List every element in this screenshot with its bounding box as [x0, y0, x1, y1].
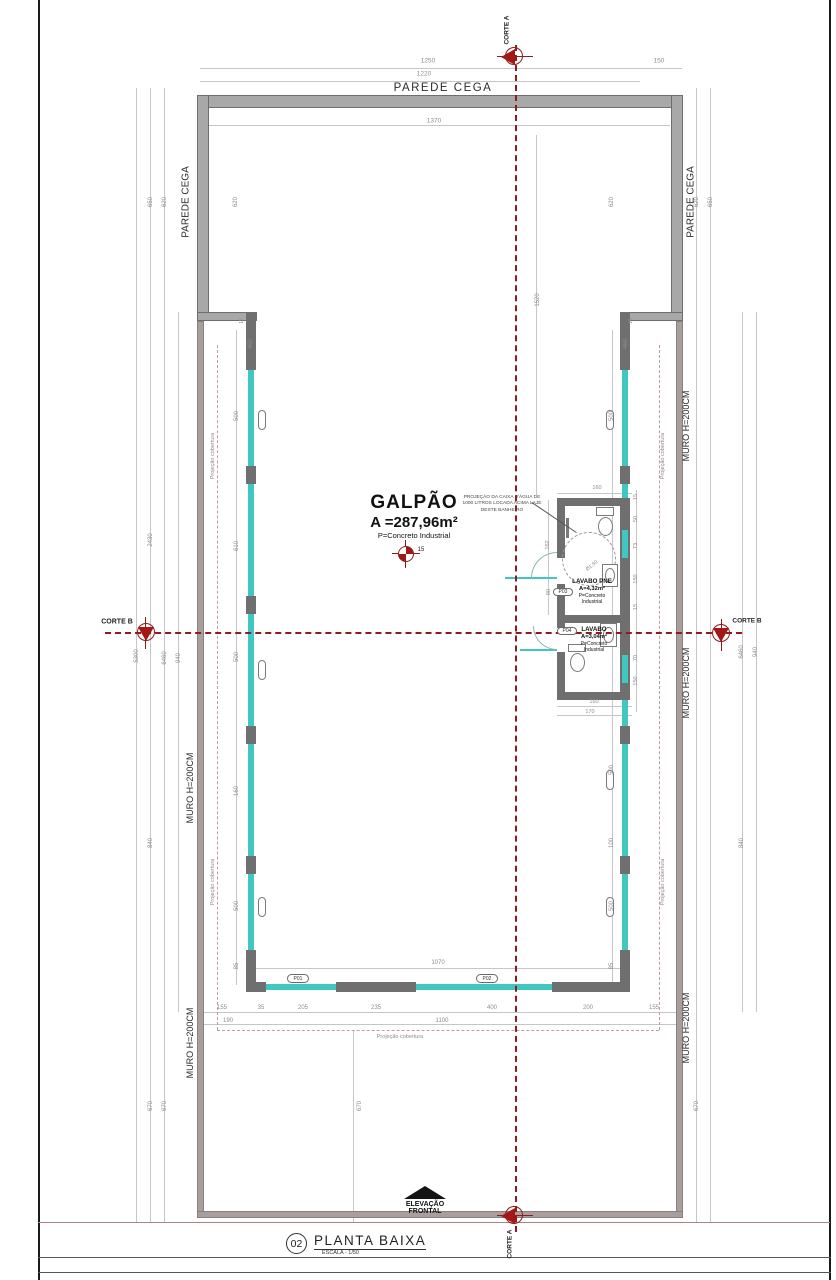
- dim-70-b: 70: [633, 655, 639, 661]
- dim-650-r: 650: [708, 197, 714, 207]
- dim-670-c: 670: [357, 1101, 363, 1111]
- section-marker-arrow-corte-b-right: [713, 628, 729, 642]
- dim-620-l1: 620: [162, 197, 168, 207]
- coverage-projection-line-left: [217, 345, 218, 1030]
- dim-line: [536, 135, 537, 495]
- lbl-muro-right-2: MURO H=200CM: [681, 648, 691, 719]
- glass-strip: [622, 874, 628, 950]
- dim-500-l2: 500: [234, 652, 240, 662]
- dim-500-l3: 500: [234, 901, 240, 911]
- dim-500-r3: 500: [609, 901, 615, 911]
- dim-15-b2: 15: [633, 604, 639, 610]
- dim-line: [557, 706, 632, 707]
- dim-150-b1: 150: [633, 574, 639, 583]
- dim-line: [209, 125, 670, 126]
- dim-line: [557, 715, 632, 716]
- lbl-parede-cega-left: PAREDE CEGA: [181, 166, 192, 238]
- dim-1100: 1100: [436, 1018, 449, 1024]
- lavabo-floor: P=Concreto Industrial: [574, 641, 614, 654]
- toilet-bowl: [598, 517, 613, 536]
- dim-85-l: 85: [234, 963, 240, 970]
- dim-line: [200, 68, 682, 69]
- drawing-number-badge: 02: [286, 1233, 307, 1254]
- door-tag-p01: P01: [287, 974, 309, 983]
- room-level-value: 15: [418, 547, 425, 553]
- dim-620-r2: 620: [694, 197, 700, 207]
- section-marker-arrow-corte-b-left: [138, 627, 154, 641]
- dim-200: 200: [583, 1005, 593, 1011]
- dim-650-l: 650: [148, 197, 154, 207]
- room-floor: P=Concreto Industrial: [352, 531, 476, 540]
- lbl-muro-left-1: MURO H=200CM: [185, 753, 195, 824]
- drawing-title: PLANTA BAIXA: [314, 1233, 426, 1250]
- lavabo-pne-name: LAVABO PNE: [564, 578, 620, 586]
- glass-strip: [248, 370, 254, 466]
- wall-left-segment: [246, 856, 256, 874]
- dim-400: 400: [487, 1005, 497, 1011]
- dim-1250: 1250: [421, 58, 435, 65]
- glass-strip: [248, 614, 254, 726]
- wall-left-segment: [246, 466, 256, 484]
- dim-35: 35: [258, 1005, 265, 1011]
- corte-a-label-bottom: CORTE A: [507, 1229, 514, 1258]
- glass-strip: [622, 370, 628, 466]
- dim-1520: 1520: [535, 293, 541, 306]
- corte-b-label-right: CORTE B: [732, 618, 761, 625]
- elevation-label-line1: ELEVAÇÃO: [386, 1201, 464, 1208]
- wall-left-segment: [246, 726, 256, 744]
- wall-bathroom-mid: [557, 615, 630, 623]
- dim-170-bb: 170: [585, 709, 594, 715]
- room-name: GALPÃO: [352, 492, 476, 514]
- dim-6460-l: 6460: [162, 651, 168, 664]
- lbl-proj-right-1: Projeção cobertura: [660, 433, 666, 479]
- elevation-marker: ELEVAÇÃO FRONTAL: [386, 1186, 464, 1215]
- wall-parede-cega-top: [197, 95, 683, 108]
- dim-620-l2: 620: [233, 197, 239, 207]
- bathroom-window: [622, 530, 628, 558]
- dim-1070: 1070: [431, 960, 444, 966]
- dim-460-l: 460: [248, 339, 254, 349]
- corte-a-label-top: CORTE A: [504, 15, 511, 44]
- toilet-bowl: [570, 653, 585, 672]
- lbl-parede-cega-top: PAREDE CEGA: [394, 82, 493, 94]
- dim-1370: 1370: [427, 118, 441, 125]
- wall-left-segment: [246, 596, 256, 614]
- section-marker-arrow-corte-a-top: [501, 49, 515, 65]
- dim-610-l: 610: [234, 541, 240, 551]
- drawing-scale: ESCALA - 1/50: [322, 1250, 359, 1256]
- sheet-border-left: [38, 0, 40, 1280]
- wall-bathroom-left: [557, 652, 565, 692]
- dim-line: [197, 1024, 682, 1025]
- door-opening-p01: [266, 984, 336, 990]
- door-opening-p02: [416, 984, 552, 990]
- dim-6460-r: 6460: [739, 645, 745, 658]
- glass-strip: [248, 484, 254, 596]
- dim-940-l: 940: [176, 653, 182, 663]
- dim-15-jl: 15: [239, 318, 245, 324]
- glass-strip: [248, 744, 254, 856]
- door-tag-p03: P03: [553, 588, 573, 596]
- window-tag: [258, 897, 266, 917]
- dim-235: 235: [371, 1005, 381, 1011]
- dim-line: [710, 88, 711, 1222]
- dim-50-b: 50: [633, 516, 639, 522]
- dim-100-r: 100: [609, 838, 615, 848]
- elevation-triangle-icon: [404, 1186, 446, 1199]
- dim-150-b2: 150: [633, 676, 639, 685]
- bathroom-window: [622, 655, 628, 683]
- dim-500-r2: 500: [609, 765, 615, 775]
- door-tag-p02: P02: [476, 974, 498, 983]
- dim-2430: 2430: [148, 533, 154, 546]
- dim-160-bb: 160: [589, 699, 598, 705]
- wall-bottom-segment: [246, 982, 266, 992]
- sheet-line-bottom-2: [38, 1272, 831, 1273]
- dim-15-b1: 15: [633, 494, 639, 500]
- dim-line: [197, 1012, 682, 1013]
- floor-plan-sheet: GALPÃO A =287,96m² P=Concreto Industrial…: [0, 0, 836, 1280]
- coverage-projection-line-bottom: [217, 1030, 659, 1031]
- glass-strip: [248, 874, 254, 950]
- room-area: A =287,96m²: [352, 514, 476, 531]
- wall-bathroom-top: [557, 498, 630, 506]
- dim-670-r: 670: [694, 1101, 700, 1111]
- sheet-line-bottom-1: [38, 1257, 831, 1258]
- wall-parede-cega-right: [671, 95, 683, 321]
- wall-muro-left: [197, 321, 204, 1218]
- dim-line: [742, 312, 743, 1012]
- wall-bottom-segment: [552, 982, 630, 992]
- dim-160-bt: 160: [592, 485, 601, 491]
- lbl-proj-left-1: Projeção cobertura: [210, 433, 216, 479]
- dim-670-l2: 670: [162, 1101, 168, 1111]
- section-marker-arrow-corte-a-bottom: [501, 1208, 515, 1224]
- wall-jog-right: [626, 312, 683, 321]
- dim-155-a: 155: [217, 1005, 227, 1011]
- door-swing-arc: [533, 626, 557, 650]
- dim-670-l1: 670: [148, 1101, 154, 1111]
- wall-right-segment: [620, 856, 630, 874]
- dim-500-r1: 500: [609, 411, 615, 421]
- corte-b-label-left: CORTE B: [101, 619, 133, 626]
- dim-1220: 1220: [417, 71, 431, 78]
- lot-line: [38, 1222, 830, 1223]
- dim-90-b: 90: [546, 589, 552, 595]
- glass-strip: [622, 700, 628, 726]
- lbl-muro-right-3: MURO H=200CM: [681, 993, 691, 1064]
- wall-right-segment: [620, 726, 630, 744]
- dim-line: [557, 493, 632, 494]
- dim-73-b: 73: [633, 543, 639, 549]
- door-tag-p04: P04: [557, 627, 577, 635]
- sheet-border-right: [829, 0, 831, 1280]
- lavabo-pne-floor: P=Concreto Industrial: [572, 593, 612, 606]
- dim-160-l: 160: [234, 786, 240, 796]
- water-tank-note: PROJEÇÃO DA CAIXA D'ÁGUA DE 1000 LITROS …: [462, 495, 542, 514]
- dim-840-r: 840: [739, 838, 745, 848]
- lbl-muro-right-1: MURO H=200CM: [681, 391, 691, 462]
- dim-line: [256, 968, 620, 969]
- section-line-corte-a: [515, 45, 517, 1232]
- lbl-muro-left-2: MURO H=200CM: [185, 1008, 195, 1079]
- dim-840-l: 840: [148, 838, 154, 848]
- dim-155-b: 155: [649, 1005, 659, 1011]
- dim-line: [756, 312, 757, 1012]
- dim-460-r: 460: [623, 339, 629, 349]
- dim-15-jr: 15: [628, 318, 634, 324]
- dim-85-r: 85: [609, 963, 615, 970]
- window-tag: [258, 410, 266, 430]
- glass-strip: [622, 744, 628, 856]
- dim-162-b: 162: [545, 540, 551, 549]
- dim-5300: 5300: [134, 649, 140, 662]
- room-label-galpao: GALPÃO A =287,96m² P=Concreto Industrial: [352, 492, 476, 540]
- dim-190: 190: [223, 1018, 233, 1024]
- window-tag: [258, 660, 266, 680]
- lavabo-area: A=3,04m²: [566, 634, 622, 641]
- wall-parede-cega-left: [197, 95, 209, 321]
- elevation-label-line2: FRONTAL: [386, 1208, 464, 1215]
- glass-strip: [622, 484, 628, 498]
- dim-940-r: 940: [753, 647, 759, 657]
- dim-205: 205: [298, 1005, 308, 1011]
- dim-500-l1: 500: [234, 411, 240, 421]
- level-marker: [398, 546, 414, 562]
- wall-bottom-segment: [336, 982, 416, 992]
- toilet-tank: [596, 507, 614, 516]
- lbl-proj-bottom: Projeção cobertura: [377, 1034, 423, 1040]
- section-line-corte-b: [105, 632, 742, 634]
- dim-line: [696, 88, 697, 1222]
- dim-line: [150, 88, 151, 1222]
- wall-right-segment: [620, 466, 630, 484]
- dim-line: [353, 1030, 354, 1222]
- lbl-proj-right-2: Projeção cobertura: [660, 859, 666, 905]
- lbl-proj-left-2: Projeção cobertura: [210, 859, 216, 905]
- dim-620-r1: 620: [609, 197, 615, 207]
- dim-150: 150: [654, 58, 665, 65]
- door-swing-arc: [531, 552, 557, 578]
